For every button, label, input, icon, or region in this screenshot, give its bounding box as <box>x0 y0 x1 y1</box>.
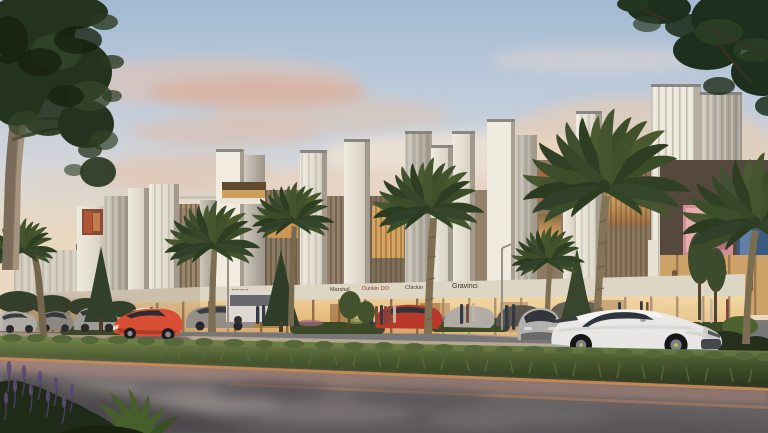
svg-text:Chickin: Chickin <box>405 285 423 291</box>
svg-text:Dunkin DO: Dunkin DO <box>362 286 390 292</box>
svg-text:Gravinci: Gravinci <box>452 283 478 290</box>
